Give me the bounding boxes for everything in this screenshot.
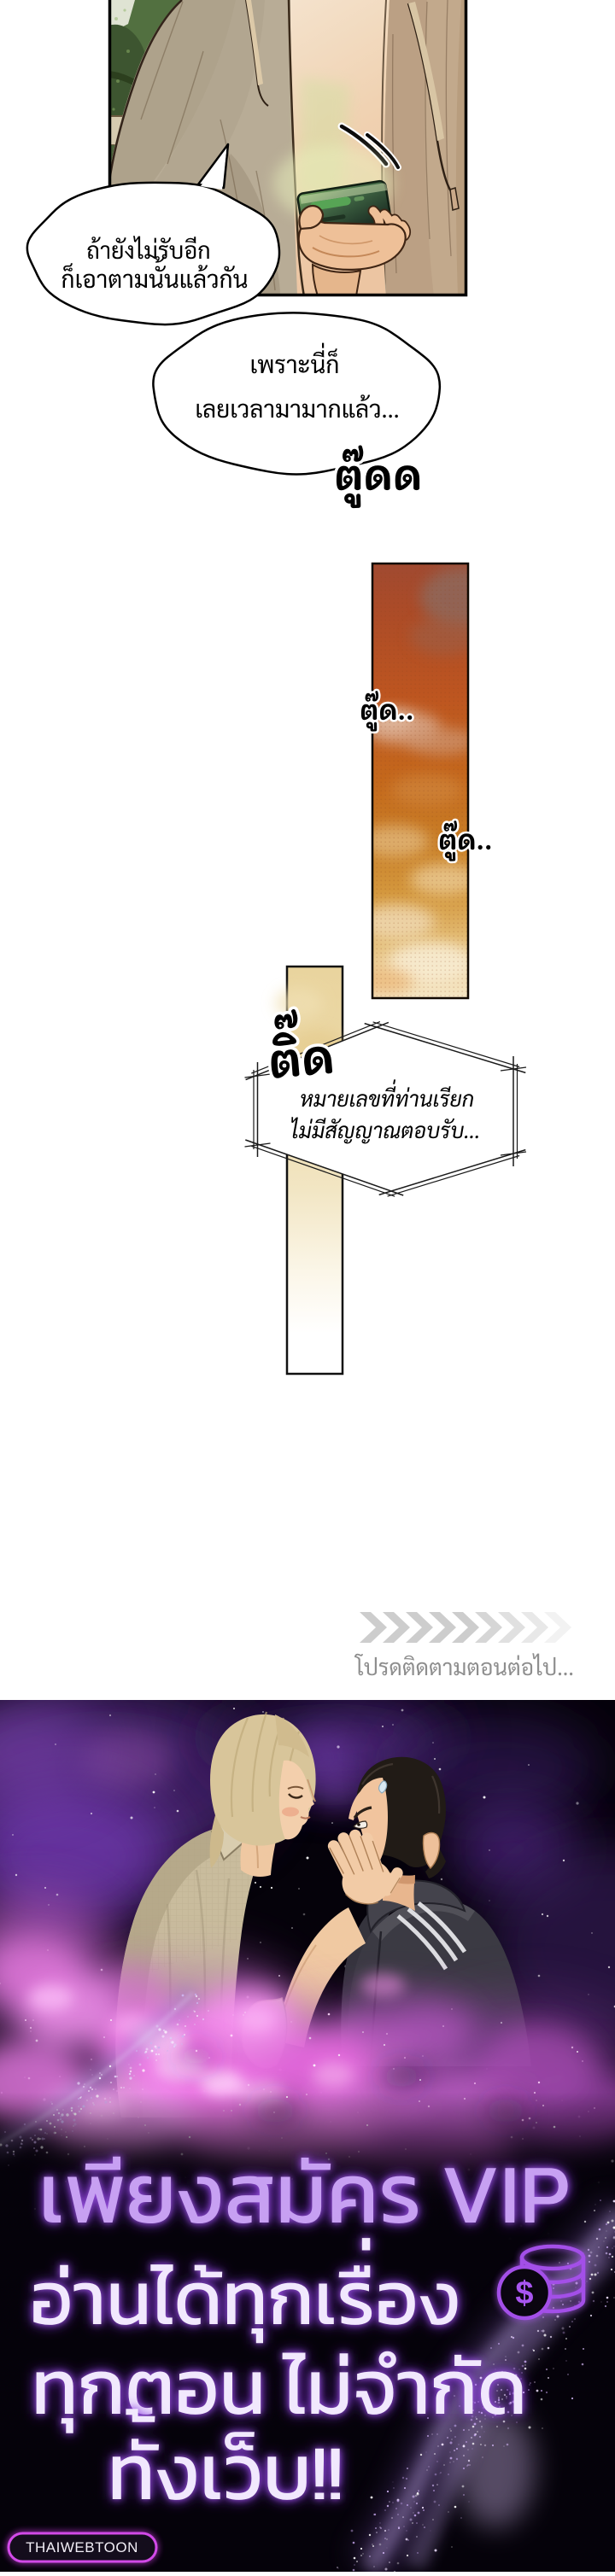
svg-text:$: $ — [515, 2275, 533, 2311]
svg-text:THAIWEBTOON: THAIWEBTOON — [26, 2539, 138, 2556]
